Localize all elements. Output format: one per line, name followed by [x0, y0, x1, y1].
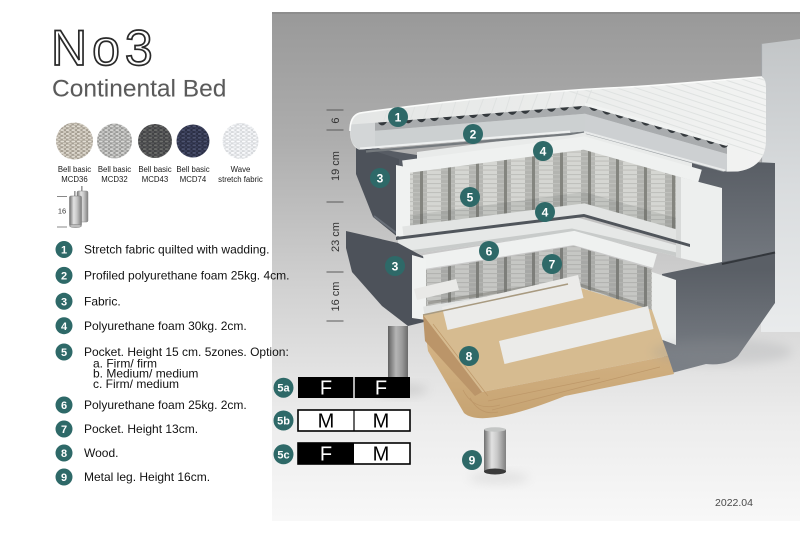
svg-text:1: 1 — [395, 110, 402, 124]
svg-text:16 cm: 16 cm — [330, 282, 342, 312]
svg-text:5a: 5a — [277, 383, 290, 395]
svg-text:Polyurethane foam 30kg. 2cm.: Polyurethane foam 30kg. 2cm. — [84, 319, 247, 333]
svg-text:23 cm: 23 cm — [330, 222, 342, 252]
svg-text:2022.04: 2022.04 — [715, 497, 753, 509]
svg-text:5b: 5b — [277, 416, 290, 428]
svg-text:Stretch fabric quilted with wa: Stretch fabric quilted with wadding. — [84, 243, 269, 257]
svg-text:Polyurethane foam 25kg. 2cm.: Polyurethane foam 25kg. 2cm. — [84, 398, 247, 412]
svg-text:16: 16 — [58, 207, 66, 216]
svg-text:19 cm: 19 cm — [330, 151, 342, 181]
svg-text:No3: No3 — [51, 20, 158, 76]
svg-text:Profiled polyurethane foam 25k: Profiled polyurethane foam 25kg. 4cm. — [84, 269, 289, 283]
svg-text:Fabric.: Fabric. — [84, 295, 121, 309]
svg-text:4: 4 — [61, 321, 68, 333]
svg-text:8: 8 — [466, 349, 473, 363]
svg-text:c. Firm/ medium: c. Firm/ medium — [93, 377, 179, 391]
svg-text:Pocket. Height 13cm.: Pocket. Height 13cm. — [84, 422, 198, 436]
svg-text:MCD36: MCD36 — [61, 175, 87, 184]
svg-text:4: 4 — [542, 205, 549, 219]
svg-text:5: 5 — [467, 190, 474, 204]
svg-text:Bell basic: Bell basic — [58, 165, 91, 174]
svg-text:Wood.: Wood. — [84, 446, 118, 460]
svg-text:MCD43: MCD43 — [142, 175, 168, 184]
svg-text:Bell basic: Bell basic — [138, 165, 171, 174]
svg-text:6: 6 — [61, 400, 67, 412]
svg-text:2: 2 — [470, 127, 477, 141]
svg-text:M: M — [373, 411, 390, 433]
svg-text:Continental Bed: Continental Bed — [52, 76, 226, 103]
svg-text:M: M — [318, 411, 335, 433]
svg-text:7: 7 — [549, 257, 556, 271]
svg-text:3: 3 — [377, 171, 384, 185]
svg-text:2: 2 — [61, 271, 67, 283]
svg-text:9: 9 — [61, 472, 67, 484]
svg-text:5c: 5c — [277, 449, 289, 461]
svg-text:stretch fabric: stretch fabric — [218, 175, 263, 184]
svg-text:4: 4 — [540, 144, 547, 158]
svg-text:F: F — [320, 444, 332, 466]
svg-text:3: 3 — [392, 259, 399, 273]
svg-text:8: 8 — [61, 448, 67, 460]
svg-text:9: 9 — [469, 453, 476, 467]
svg-text:MCD74: MCD74 — [180, 175, 207, 184]
svg-text:Wave: Wave — [231, 165, 251, 174]
svg-text:1: 1 — [61, 245, 67, 257]
svg-text:F: F — [320, 378, 332, 400]
svg-text:6: 6 — [486, 244, 493, 258]
svg-text:Bell basic: Bell basic — [176, 165, 209, 174]
svg-text:MCD32: MCD32 — [101, 175, 127, 184]
svg-text:3: 3 — [61, 296, 67, 308]
svg-text:6: 6 — [330, 117, 342, 123]
svg-text:F: F — [375, 378, 387, 400]
svg-text:Bell basic: Bell basic — [98, 165, 131, 174]
svg-text:7: 7 — [61, 424, 67, 436]
svg-text:5: 5 — [61, 347, 67, 359]
svg-text:Metal leg. Height 16cm.: Metal leg. Height 16cm. — [84, 470, 210, 484]
svg-text:M: M — [373, 444, 390, 466]
